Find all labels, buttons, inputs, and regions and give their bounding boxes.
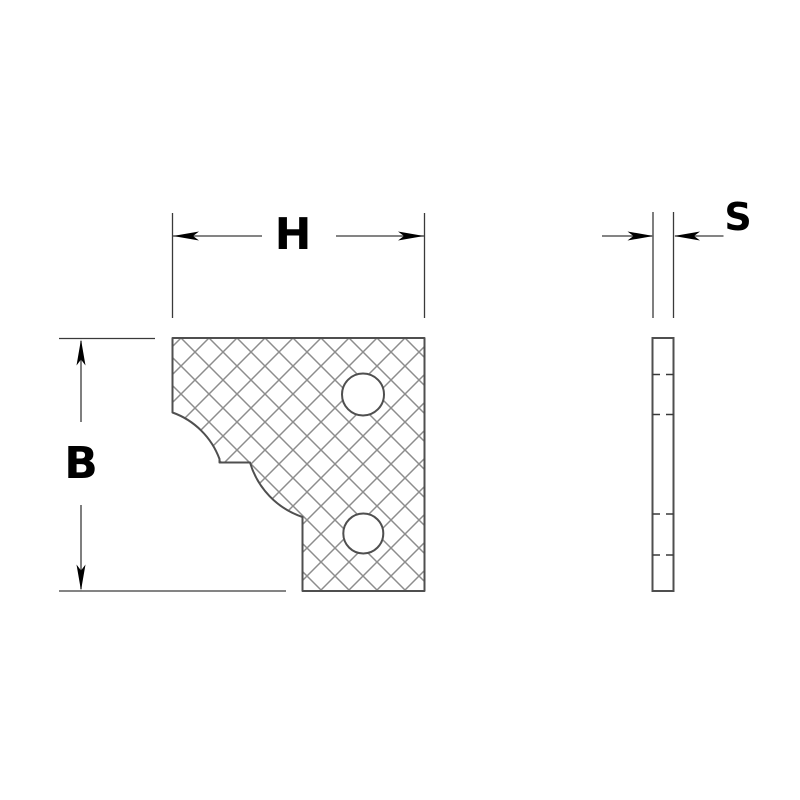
dimension-s: S bbox=[602, 195, 752, 318]
technical-drawing: H B S bbox=[0, 0, 800, 800]
side-view-plate bbox=[653, 338, 674, 591]
b-dimension-label: B bbox=[64, 438, 98, 489]
knife-profile-outline bbox=[173, 338, 425, 591]
dimension-h: H bbox=[173, 209, 425, 318]
front-view bbox=[173, 338, 425, 591]
drawing-canvas: H B S bbox=[0, 0, 800, 800]
s-dimension-label: S bbox=[724, 195, 751, 239]
mounting-hole-bottom bbox=[343, 514, 383, 554]
mounting-hole-top bbox=[342, 374, 384, 416]
side-view bbox=[653, 338, 674, 591]
h-dimension-label: H bbox=[275, 209, 312, 260]
